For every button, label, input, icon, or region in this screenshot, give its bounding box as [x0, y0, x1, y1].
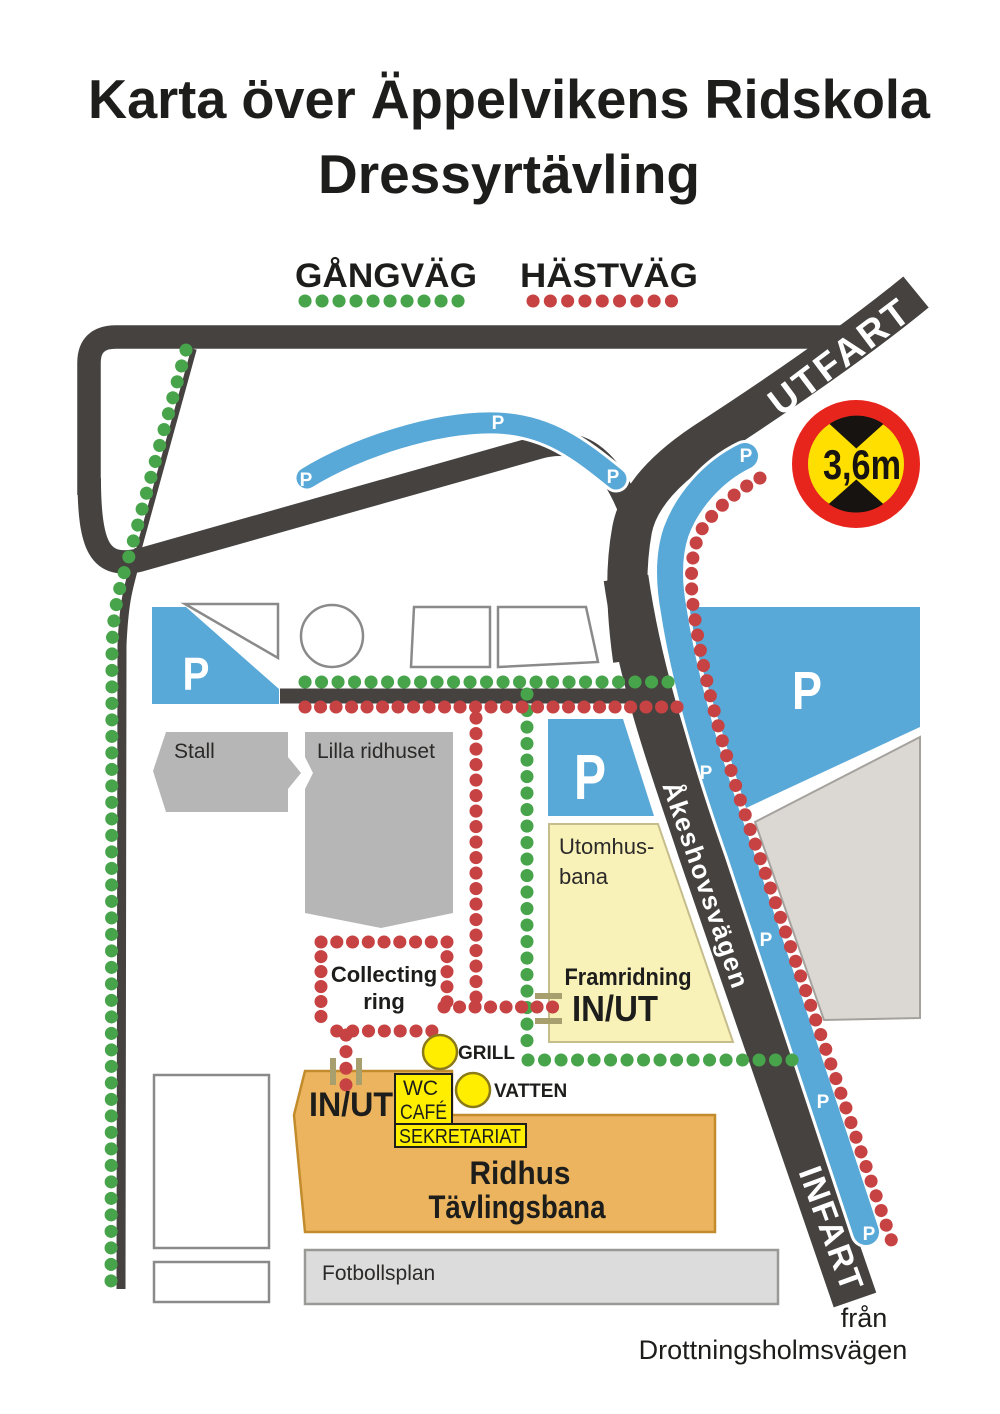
- svg-text:ring: ring: [363, 989, 405, 1014]
- svg-text:GÅNGVÄG: GÅNGVÄG: [295, 257, 477, 295]
- svg-text:Collecting: Collecting: [331, 962, 437, 987]
- svg-text:P: P: [183, 648, 210, 700]
- svg-text:P: P: [300, 470, 313, 491]
- svg-text:P: P: [740, 446, 753, 467]
- svg-text:P: P: [607, 467, 620, 488]
- svg-text:P: P: [760, 930, 773, 951]
- svg-text:Karta över Äppelvikens Ridskol: Karta över Äppelvikens Ridskola: [88, 68, 930, 130]
- svg-text:HÄSTVÄG: HÄSTVÄG: [520, 257, 698, 295]
- svg-text:Dressyrtävling: Dressyrtävling: [318, 143, 700, 205]
- svg-text:från: från: [841, 1303, 888, 1333]
- svg-text:Fotbollsplan: Fotbollsplan: [322, 1262, 435, 1285]
- svg-text:SEKRETARIAT: SEKRETARIAT: [399, 1126, 521, 1148]
- svg-text:Framridning: Framridning: [565, 964, 692, 991]
- svg-text:VATTEN: VATTEN: [494, 1081, 567, 1102]
- svg-text:IN/UT: IN/UT: [309, 1086, 393, 1124]
- svg-text:Lilla ridhuset: Lilla ridhuset: [317, 740, 435, 763]
- svg-text:bana: bana: [559, 864, 609, 889]
- svg-text:Tävlingsbana: Tävlingsbana: [429, 1189, 606, 1225]
- svg-text:P: P: [574, 741, 606, 813]
- svg-text:GRILL: GRILL: [458, 1043, 515, 1064]
- svg-text:Stall: Stall: [174, 740, 215, 763]
- svg-text:P: P: [863, 1224, 876, 1245]
- svg-text:P: P: [817, 1092, 830, 1113]
- svg-text:WC: WC: [403, 1077, 438, 1100]
- svg-text:CAFÉ: CAFÉ: [400, 1101, 447, 1124]
- svg-text:Ridhus: Ridhus: [470, 1155, 571, 1191]
- svg-text:Utomhus-: Utomhus-: [559, 834, 654, 859]
- svg-text:IN/UT: IN/UT: [572, 988, 658, 1029]
- svg-text:Drottningsholmsvägen: Drottningsholmsvägen: [639, 1335, 908, 1365]
- svg-text:P: P: [492, 413, 505, 434]
- svg-text:P: P: [792, 661, 822, 721]
- svg-text:P: P: [700, 763, 713, 784]
- svg-text:3,6m: 3,6m: [823, 441, 901, 488]
